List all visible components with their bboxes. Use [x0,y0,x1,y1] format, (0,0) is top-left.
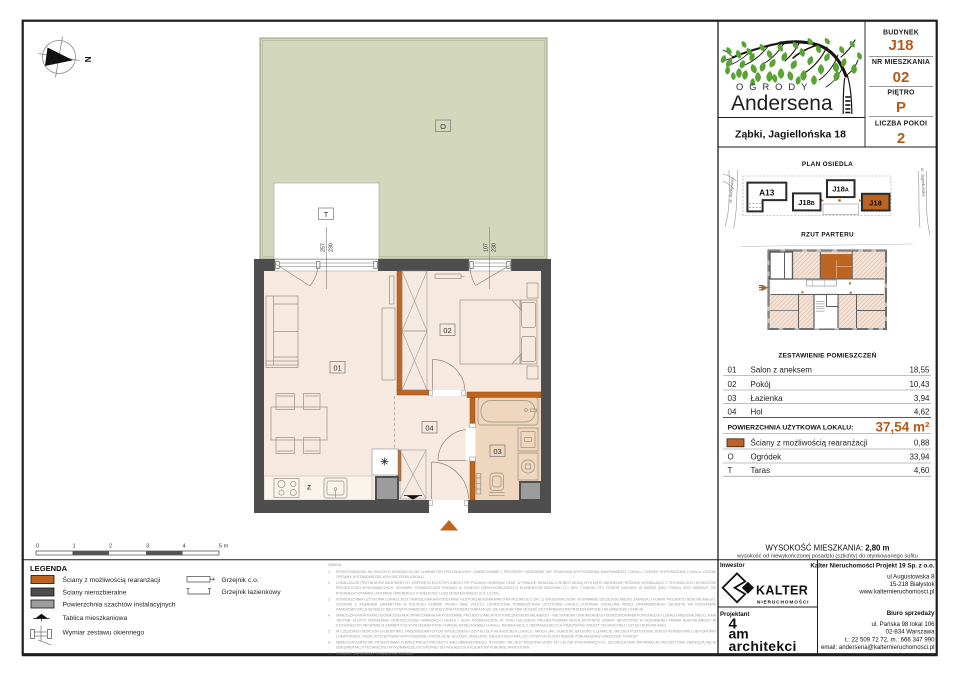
svg-text:02: 02 [893,69,910,86]
svg-text:Ściany z możliwością rearanżac: Ściany z możliwością rearanżacji [63,575,161,584]
svg-text:230: 230 [492,243,498,252]
svg-text:P: P [896,99,906,116]
svg-text:3,94: 3,94 [914,394,930,403]
svg-text:4,60: 4,60 [914,466,930,475]
svg-text:ul. Pańska 98 lokal 106: ul. Pańska 98 lokal 106 [871,621,935,628]
svg-text:Ściany z możliwością rearanżac: Ściany z możliwością rearanżacji [751,439,868,448]
svg-text:J18: J18 [869,198,882,207]
svg-text:Biuro sprzedaży: Biuro sprzedaży [887,610,935,617]
svg-text:4,62: 4,62 [914,408,930,417]
svg-text:ZESTAWIENIE POMIESZCZEŃ: ZESTAWIENIE POMIESZCZEŃ [778,351,876,360]
svg-text:Pokój: Pokój [751,380,771,389]
svg-text:KALTER: KALTER [756,584,808,598]
svg-text:T: T [728,466,733,475]
svg-text:04: 04 [728,408,737,417]
svg-text:RZUT PARTERU: RZUT PARTERU [801,232,854,239]
svg-text:Inwestor: Inwestor [720,563,745,569]
svg-text:Kalter Nieruchomości Projekt 1: Kalter Nieruchomości Projekt 19 Sp. z o.… [810,562,934,569]
svg-text:4: 4 [183,544,186,550]
svg-text:OGRODY: OGRODY [736,82,813,92]
svg-text:33,94: 33,94 [909,453,930,462]
svg-text:Hol: Hol [751,408,763,417]
svg-text:Taras: Taras [751,466,771,475]
svg-text:257: 257 [320,243,326,252]
svg-text:1: 1 [73,544,76,550]
svg-text:01: 01 [333,363,341,372]
svg-text:2: 2 [109,544,112,550]
svg-text:2: 2 [897,130,905,147]
svg-text:PLAN OSIEDLA: PLAN OSIEDLA [802,161,853,168]
svg-text:BUDYNEK: BUDYNEK [883,29,919,36]
svg-text:37,54 m²: 37,54 m² [875,420,930,435]
svg-text:POWIERZCHNIA UŻYTKOWA LOKALU:: POWIERZCHNIA UŻYTKOWA LOKALU: [728,424,854,432]
svg-text:LICZBA POKOI: LICZBA POKOI [875,121,927,128]
svg-text:18,55: 18,55 [909,366,930,375]
svg-text:ul Augustowska 8: ul Augustowska 8 [887,573,935,580]
svg-text:ul. Jagiellońska: ul. Jagiellońska [920,168,927,198]
svg-text:NR MIESZKANIA: NR MIESZKANIA [872,59,930,66]
svg-text:T: T [324,210,329,219]
svg-text:Ściany nierozbieralne: Ściany nierozbieralne [63,588,127,597]
svg-text:0,88: 0,88 [914,439,930,448]
svg-text:02: 02 [728,380,737,389]
svg-text:O: O [728,453,734,462]
svg-text:A13: A13 [759,187,775,197]
svg-text:Łazienka: Łazienka [751,394,784,403]
svg-text:01: 01 [728,366,737,375]
svg-text:Ząbki, Jagiellońska 18: Ząbki, Jagiellońska 18 [735,129,846,141]
svg-text:03: 03 [493,447,501,456]
svg-text:107: 107 [483,243,489,252]
svg-text:Grzejnik c.o.: Grzejnik c.o. [222,577,259,584]
svg-text:email: andersena@kalternieruch: email: andersena@kalternieruchomosci.pl [821,644,935,651]
svg-text:02: 02 [443,326,451,335]
svg-text:Andersena: Andersena [731,92,833,115]
svg-text:PIĘTRO: PIĘTRO [887,90,915,97]
svg-text:3: 3 [146,544,149,550]
svg-text:J18: J18 [888,37,913,54]
svg-text:02-834 Warszawa: 02-834 Warszawa [886,629,935,636]
svg-text:Tablica mieszkaniowa: Tablica mieszkaniowa [63,615,128,622]
svg-text:10,43: 10,43 [909,380,930,389]
svg-text:www.kalternieruchomosci.pl: www.kalternieruchomosci.pl [858,589,934,596]
svg-text:Ogródek: Ogródek [751,453,783,462]
svg-text:0: 0 [36,544,39,550]
svg-text:t.: 22 509 72 72, m.: 666 347: t.: 22 509 72 72, m.: 666 347 990 [845,636,935,643]
svg-text:15-218 Białystok: 15-218 Białystok [889,581,935,588]
svg-text:ul. Andersena: ul. Andersena [728,176,735,203]
svg-text:O: O [440,122,446,131]
svg-text:architekci: architekci [729,638,797,654]
svg-text:5 m: 5 m [219,544,229,550]
svg-text:N: N [83,57,92,63]
svg-text:WYSOKOŚĆ MIESZKANIA: 2,80 m: WYSOKOŚĆ MIESZKANIA: 2,80 m [766,544,890,553]
svg-text:Grzejnik łazienkowy: Grzejnik łazienkowy [222,589,282,596]
svg-text:wysokość od niewykończonej pos: wysokość od niewykończonej posadzki (szl… [736,554,918,560]
svg-text:03: 03 [728,394,737,403]
svg-text:04: 04 [425,423,433,432]
svg-text:Powierzchnia szachtów instalac: Powierzchnia szachtów instalacyjnych [63,602,176,609]
svg-text:LEGENDA: LEGENDA [30,564,68,573]
svg-text:NIERUCHOMOŚCI: NIERUCHOMOŚCI [757,599,809,606]
svg-text:Salon z aneksem: Salon z aneksem [751,366,813,375]
svg-text:230: 230 [329,243,335,252]
svg-text:Z: Z [307,485,311,492]
svg-text:Wymiar zestawu okiennego: Wymiar zestawu okiennego [63,630,145,637]
